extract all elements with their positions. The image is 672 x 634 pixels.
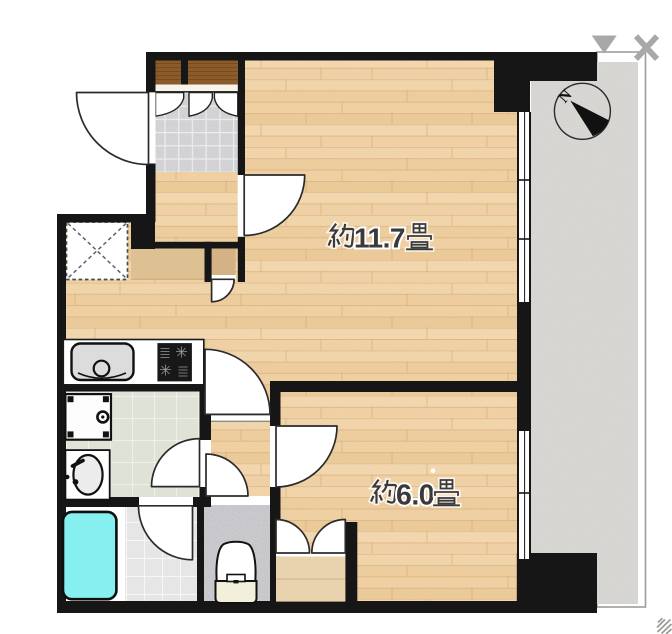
svg-text:11.7: 11.7 (354, 223, 405, 254)
svg-text:6.0: 6.0 (396, 480, 434, 512)
